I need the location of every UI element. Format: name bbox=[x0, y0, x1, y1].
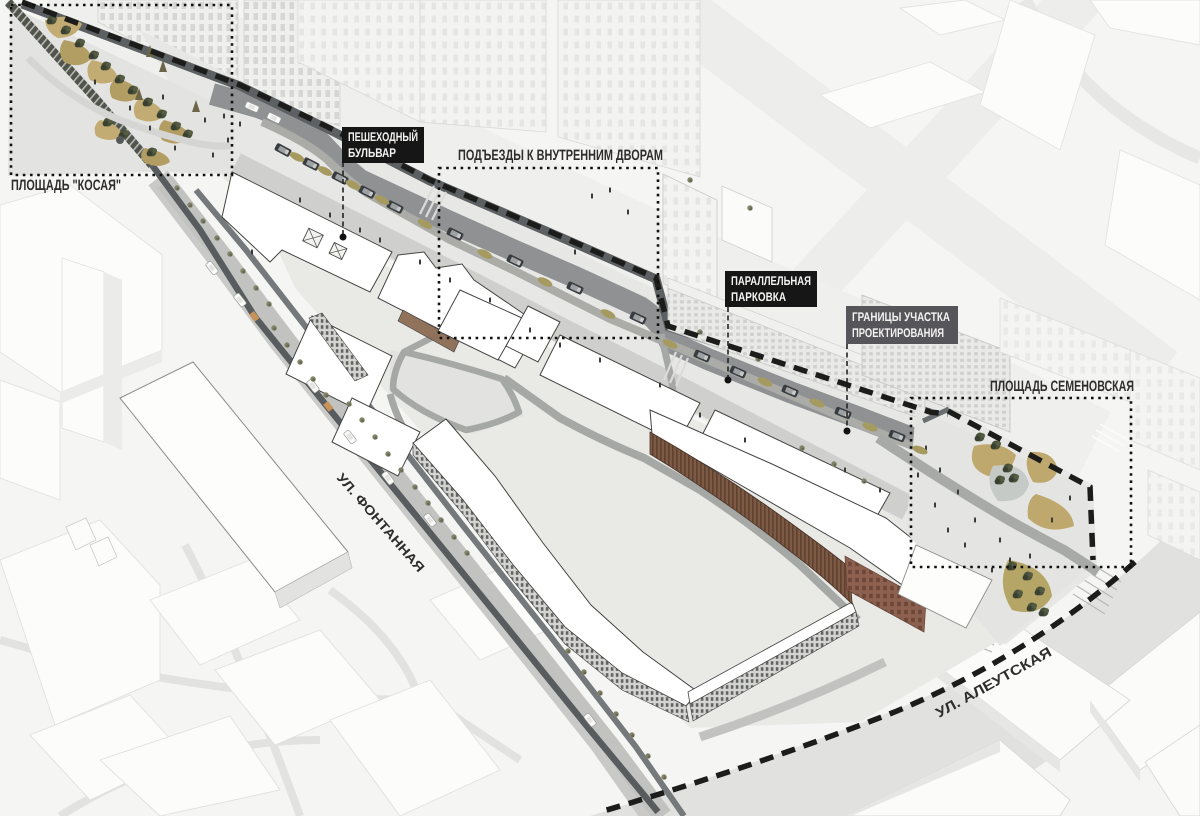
svg-text:ПАРКОВКА: ПАРКОВКА bbox=[731, 290, 786, 304]
svg-text:ПЕШЕХОДНЫЙ: ПЕШЕХОДНЫЙ bbox=[348, 129, 418, 144]
svg-text:ПАРАЛЛЕЛЬНАЯ: ПАРАЛЛЕЛЬНАЯ bbox=[731, 274, 811, 288]
svg-text:ПЛОЩАДЬ "КОСАЯ": ПЛОЩАДЬ "КОСАЯ" bbox=[11, 177, 121, 194]
svg-text:ПЛОЩАДЬ СЕМЕНОВСКАЯ: ПЛОЩАДЬ СЕМЕНОВСКАЯ bbox=[990, 378, 1134, 395]
svg-text:ГРАНИЦЫ УЧАСТКА: ГРАНИЦЫ УЧАСТКА bbox=[852, 310, 950, 324]
svg-text:ПОДЪЕЗДЫ К ВНУТРЕННИМ ДВОРАМ: ПОДЪЕЗДЫ К ВНУТРЕННИМ ДВОРАМ bbox=[458, 147, 663, 164]
svg-text:БУЛЬВАР: БУЛЬВАР bbox=[348, 146, 396, 160]
svg-text:ПРОЕКТИРОВАНИЯ: ПРОЕКТИРОВАНИЯ bbox=[852, 326, 944, 340]
